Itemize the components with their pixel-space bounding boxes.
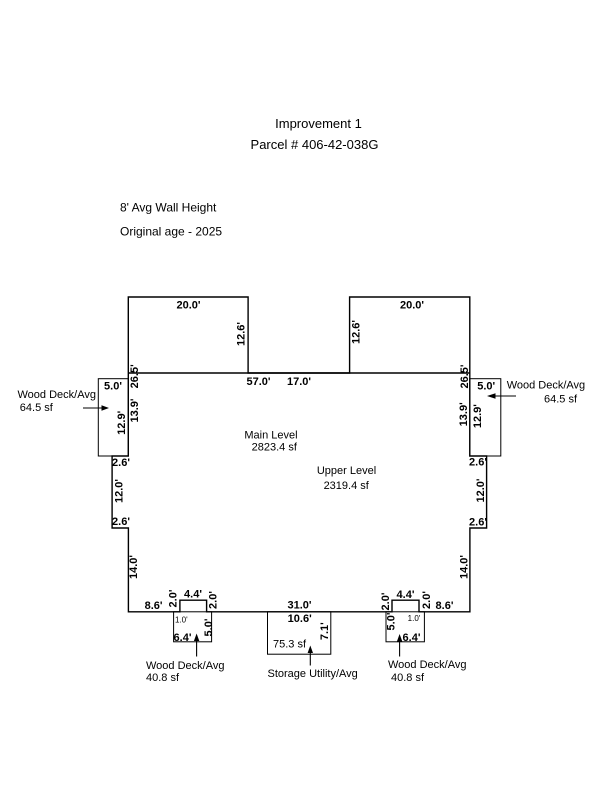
svg-text:4.4': 4.4'	[184, 588, 202, 600]
svg-text:2823.4 sf: 2823.4 sf	[252, 441, 298, 453]
svg-text:14.0': 14.0'	[459, 555, 471, 579]
svg-text:4.4': 4.4'	[397, 589, 415, 601]
svg-text:Wood Deck/Avg: Wood Deck/Avg	[146, 660, 224, 672]
svg-text:12.6': 12.6'	[351, 320, 363, 344]
svg-text:64.5 sf: 64.5 sf	[20, 402, 54, 414]
svg-text:8.6': 8.6'	[145, 600, 163, 612]
svg-text:Wood Deck/Avg: Wood Deck/Avg	[18, 389, 96, 401]
svg-text:Upper Level: Upper Level	[317, 465, 376, 477]
svg-text:75.3 sf: 75.3 sf	[273, 639, 307, 651]
svg-text:8.6': 8.6'	[436, 600, 454, 612]
svg-text:Storage Utility/Avg: Storage Utility/Avg	[268, 668, 358, 680]
svg-text:2.6': 2.6'	[469, 516, 487, 528]
svg-text:26.5': 26.5'	[129, 364, 141, 388]
svg-text:5.0': 5.0'	[386, 612, 398, 630]
svg-text:20.0': 20.0'	[400, 300, 424, 312]
svg-text:12.0': 12.0'	[114, 479, 126, 503]
svg-text:Improvement 1: Improvement 1	[275, 116, 362, 131]
svg-text:2.0': 2.0'	[380, 592, 392, 610]
svg-text:5.0': 5.0'	[203, 618, 215, 636]
svg-text:Main Level: Main Level	[244, 429, 297, 441]
svg-text:12.6': 12.6'	[236, 322, 248, 346]
svg-text:2.6': 2.6'	[112, 516, 130, 528]
svg-text:2.6': 2.6'	[469, 456, 487, 468]
svg-text:40.8 sf: 40.8 sf	[391, 672, 425, 684]
svg-text:17.0': 17.0'	[287, 376, 311, 388]
svg-text:2319.4 sf: 2319.4 sf	[324, 480, 370, 492]
svg-text:Original age - 2025: Original age - 2025	[120, 225, 222, 239]
svg-text:64.5 sf: 64.5 sf	[544, 394, 578, 406]
svg-text:2.0': 2.0'	[208, 591, 220, 609]
svg-text:Wood Deck/Avg: Wood Deck/Avg	[507, 380, 585, 392]
svg-text:7.1': 7.1'	[319, 622, 331, 640]
svg-text:26.5': 26.5'	[459, 364, 471, 388]
svg-text:20.0': 20.0'	[176, 300, 200, 312]
svg-text:5.0': 5.0'	[104, 381, 122, 393]
svg-text:10.6': 10.6'	[288, 613, 312, 625]
svg-text:12.9': 12.9'	[116, 410, 128, 434]
svg-text:2.6': 2.6'	[112, 457, 130, 469]
svg-text:6.4': 6.4'	[403, 632, 421, 644]
svg-text:1.0': 1.0'	[175, 615, 188, 624]
svg-text:13.9': 13.9'	[129, 398, 141, 422]
svg-text:12.9': 12.9'	[472, 404, 484, 428]
svg-text:Parcel # 406-42-038G: Parcel # 406-42-038G	[251, 137, 379, 152]
svg-text:12.0': 12.0'	[475, 478, 487, 502]
svg-text:40.8 sf: 40.8 sf	[146, 672, 180, 684]
svg-text:57.0': 57.0'	[246, 376, 270, 388]
svg-text:2.0': 2.0'	[421, 591, 433, 609]
svg-text:31.0': 31.0'	[287, 599, 311, 611]
svg-text:5.0': 5.0'	[477, 381, 495, 393]
svg-text:13.9': 13.9'	[458, 402, 470, 426]
svg-text:Wood Deck/Avg: Wood Deck/Avg	[388, 659, 466, 671]
svg-text:6.4': 6.4'	[174, 632, 192, 644]
svg-text:2.0': 2.0'	[168, 589, 180, 607]
svg-text:8' Avg Wall Height: 8' Avg Wall Height	[120, 201, 217, 215]
svg-text:14.0': 14.0'	[128, 555, 140, 579]
svg-text:1.0': 1.0'	[408, 614, 421, 623]
